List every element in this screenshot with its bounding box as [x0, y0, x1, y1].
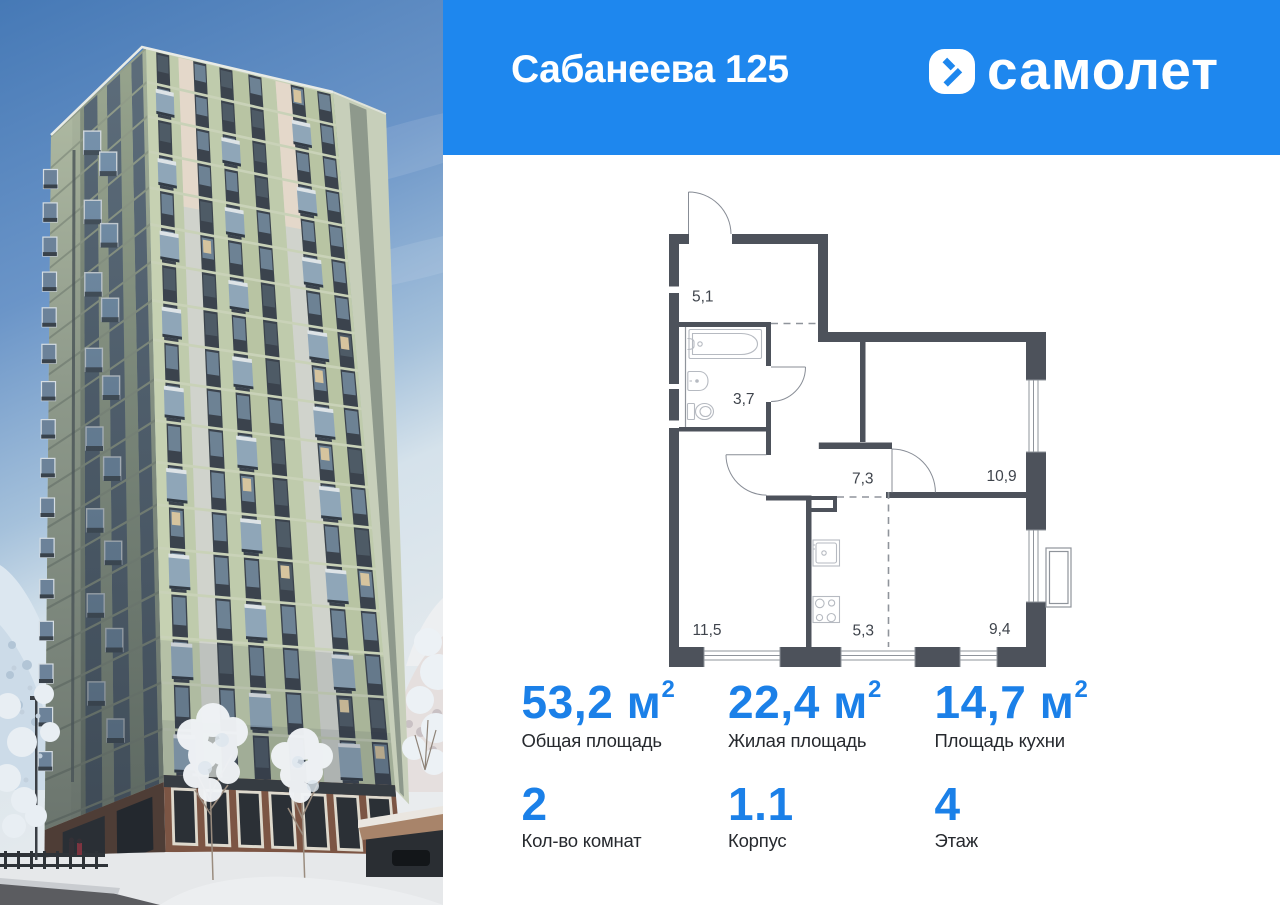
svg-text:5,3: 5,3 — [853, 623, 875, 640]
svg-text:11,5: 11,5 — [693, 622, 722, 639]
svg-text:9,4: 9,4 — [989, 621, 1011, 638]
svg-text:3,7: 3,7 — [733, 391, 755, 408]
svg-text:7,3: 7,3 — [852, 471, 874, 488]
svg-text:5,1: 5,1 — [692, 289, 714, 306]
svg-text:10,9: 10,9 — [987, 468, 1017, 485]
